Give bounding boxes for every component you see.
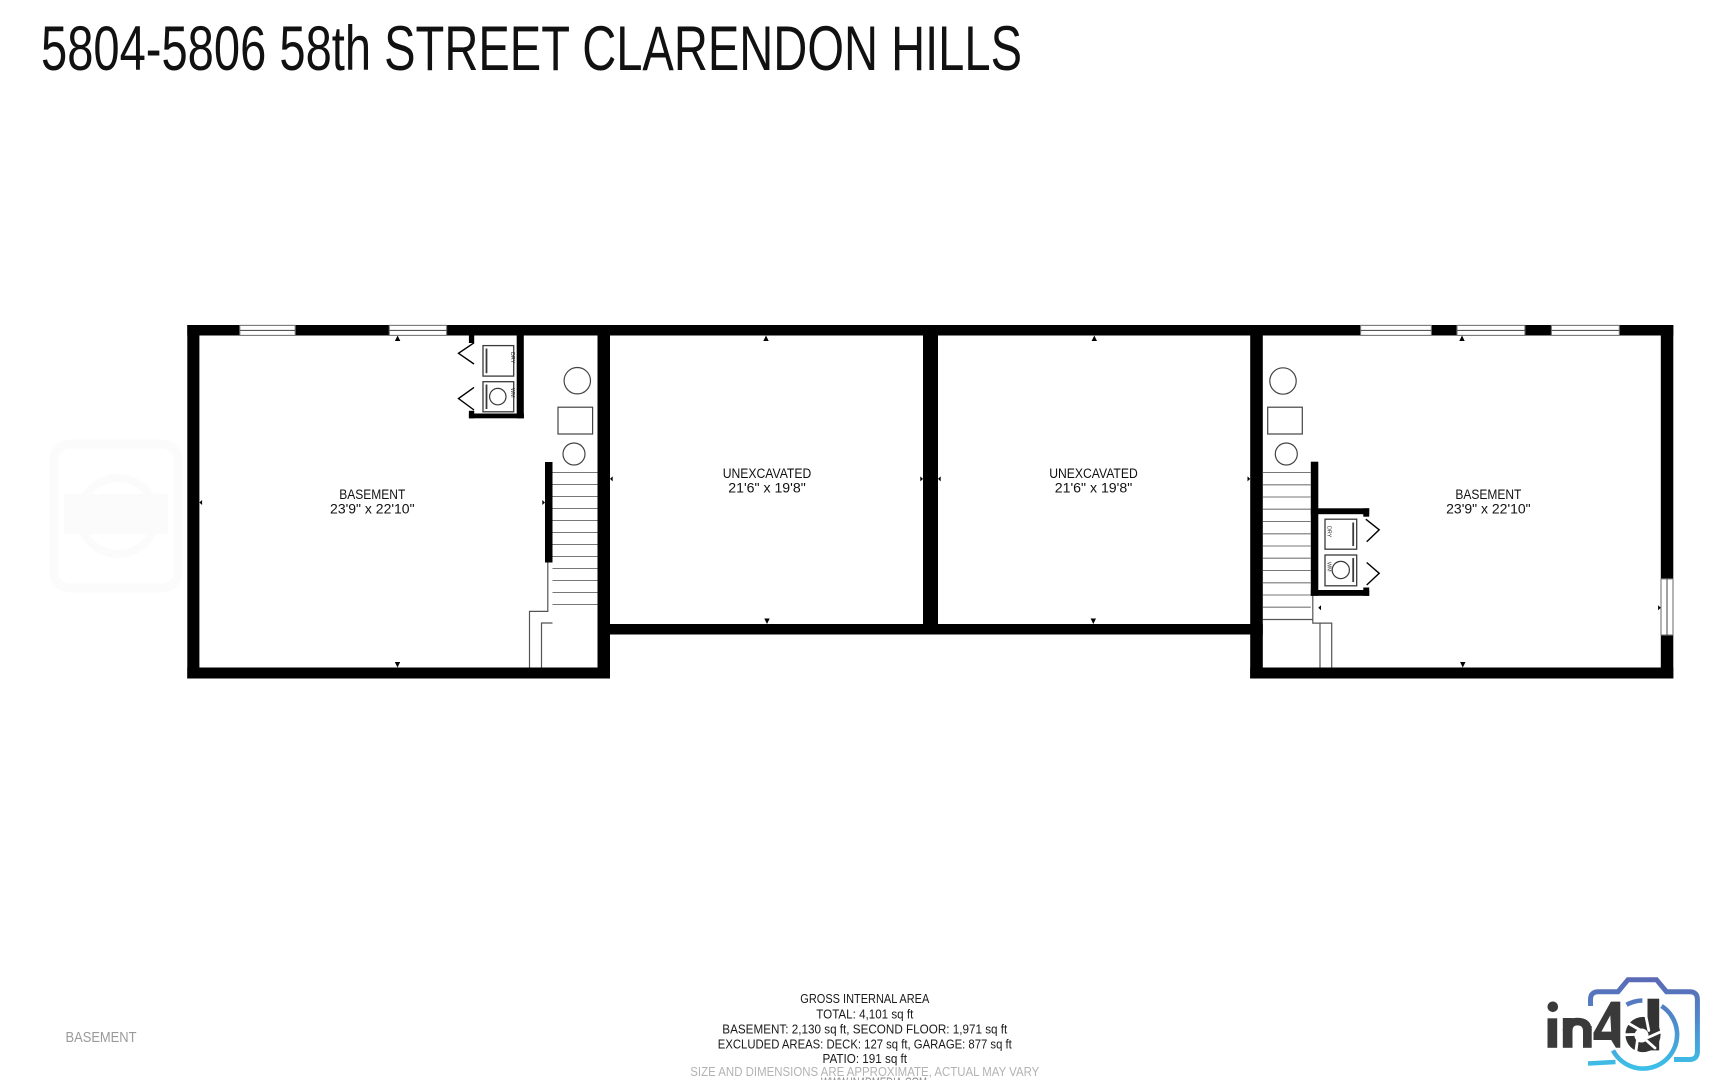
svg-text:23'9" x 22'10": 23'9" x 22'10" xyxy=(330,502,415,517)
svg-text:UNEXCAVATED: UNEXCAVATED xyxy=(723,466,812,481)
svg-text:EXCLUDED AREAS: DECK: 127 sq f: EXCLUDED AREAS: DECK: 127 sq ft, GARAGE:… xyxy=(718,1037,1012,1052)
svg-text:WWW.IN4DMEDIA.COM: WWW.IN4DMEDIA.COM xyxy=(821,1075,927,1080)
svg-text:BASEMENT: 2,130 sq ft, SECOND: BASEMENT: 2,130 sq ft, SECOND FLOOR: 1,9… xyxy=(722,1021,1007,1036)
svg-text:21'6" x 19'8": 21'6" x 19'8" xyxy=(728,481,806,496)
svg-text:BASEMENT: BASEMENT xyxy=(1455,487,1521,502)
svg-text:UNEXCAVATED: UNEXCAVATED xyxy=(1049,466,1138,481)
svg-text:GROSS INTERNAL AREA: GROSS INTERNAL AREA xyxy=(800,991,929,1006)
svg-text:BASEMENT: BASEMENT xyxy=(339,487,405,502)
svg-text:23'9" x 22'10": 23'9" x 22'10" xyxy=(1446,502,1531,517)
svg-text:WM: WM xyxy=(509,388,515,398)
svg-text:DRY: DRY xyxy=(1326,526,1332,538)
svg-text:DRY: DRY xyxy=(509,352,515,364)
svg-text:5804-5806 58th STREET CLARENDO: 5804-5806 58th STREET CLARENDON HILLS xyxy=(41,14,1022,84)
svg-text:TOTAL: 4,101 sq ft: TOTAL: 4,101 sq ft xyxy=(816,1006,913,1021)
svg-text:BASEMENT: BASEMENT xyxy=(66,1030,137,1046)
svg-text:WM: WM xyxy=(1326,562,1332,572)
svg-text:21'6" x 19'8": 21'6" x 19'8" xyxy=(1055,481,1133,496)
